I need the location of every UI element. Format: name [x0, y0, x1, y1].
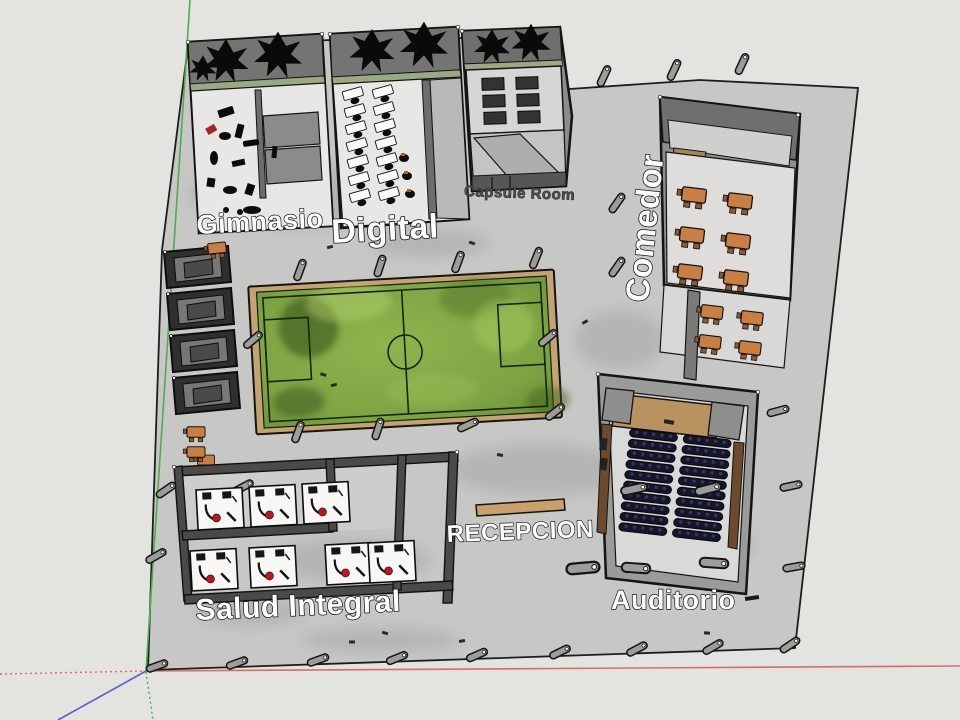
- label-digital: Digital: [330, 207, 439, 251]
- comedor-building: [658, 95, 800, 380]
- capsule-room-building: [460, 24, 572, 191]
- soccer-field: [248, 269, 571, 434]
- digital-building: [328, 22, 469, 228]
- label-auditorio: Auditorio: [611, 585, 735, 615]
- auditorio-building: [596, 372, 760, 594]
- gimnasio-building: [186, 32, 333, 233]
- label-recepcion: RECEPCION: [446, 516, 594, 548]
- model-viewport[interactable]: Gimnasio Digital Capsule Room Comedor RE…: [0, 0, 960, 720]
